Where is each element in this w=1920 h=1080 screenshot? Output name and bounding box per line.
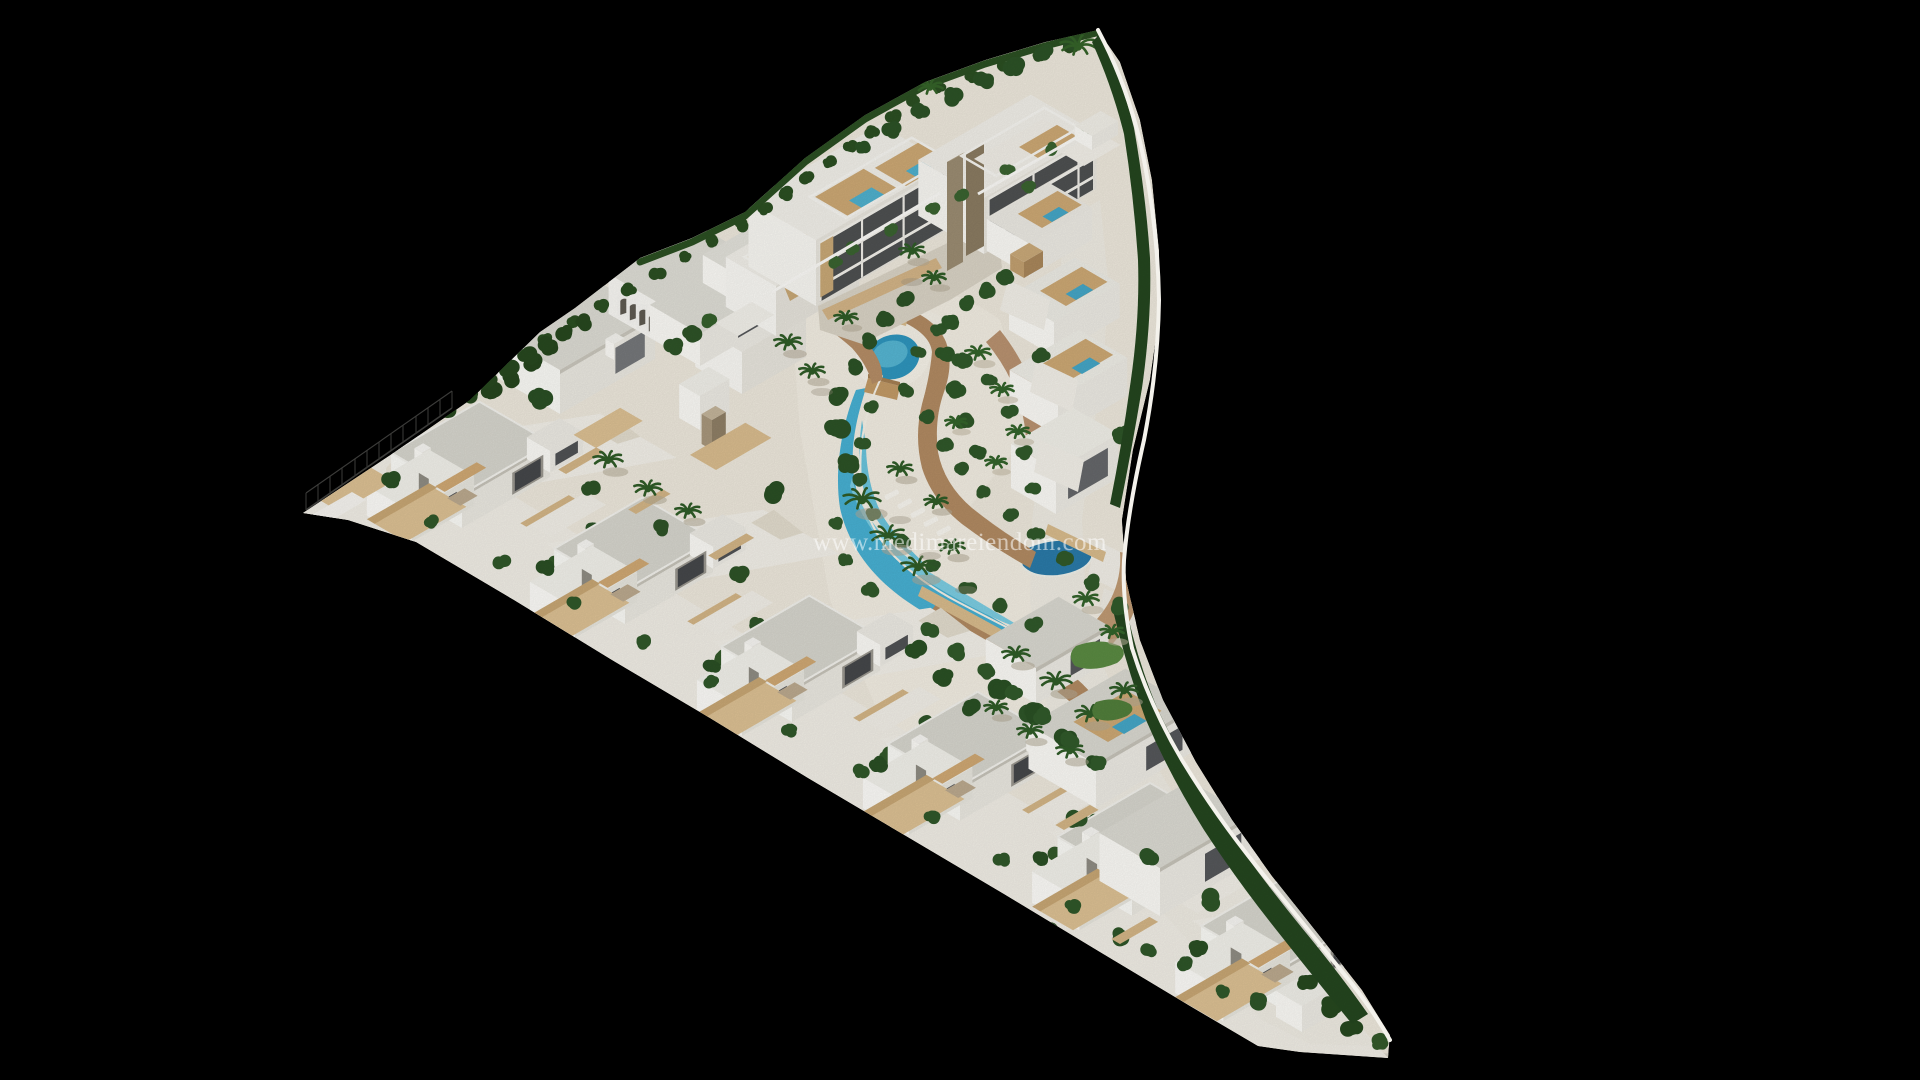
svg-text:www.medimareiendom.com: www.medimareiendom.com bbox=[813, 529, 1107, 556]
